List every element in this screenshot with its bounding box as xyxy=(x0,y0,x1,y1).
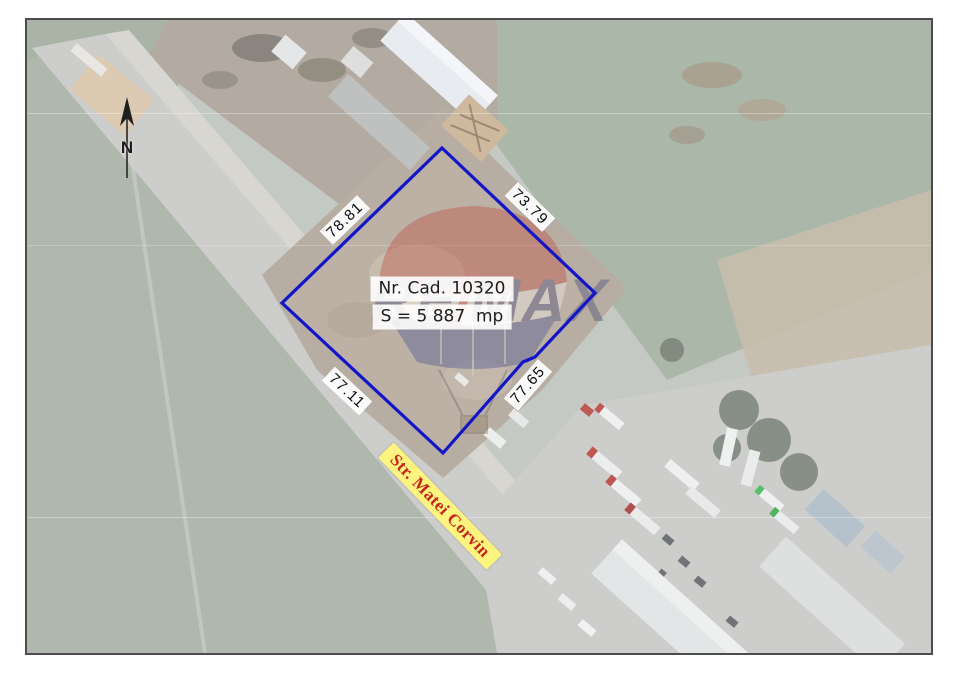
map-page: RE/MAX 78.81 73.79 77.65 77.11 Nr. Cad. … xyxy=(0,0,960,679)
area-label: S = 5 887 mp xyxy=(373,305,512,330)
map-frame: RE/MAX 78.81 73.79 77.65 77.11 Nr. Cad. … xyxy=(25,18,933,655)
cadastral-number-label: Nr. Cad. 10320 xyxy=(371,277,514,302)
aerial-photo: RE/MAX 78.81 73.79 77.65 77.11 Nr. Cad. … xyxy=(27,20,931,653)
north-label: N xyxy=(121,138,133,158)
